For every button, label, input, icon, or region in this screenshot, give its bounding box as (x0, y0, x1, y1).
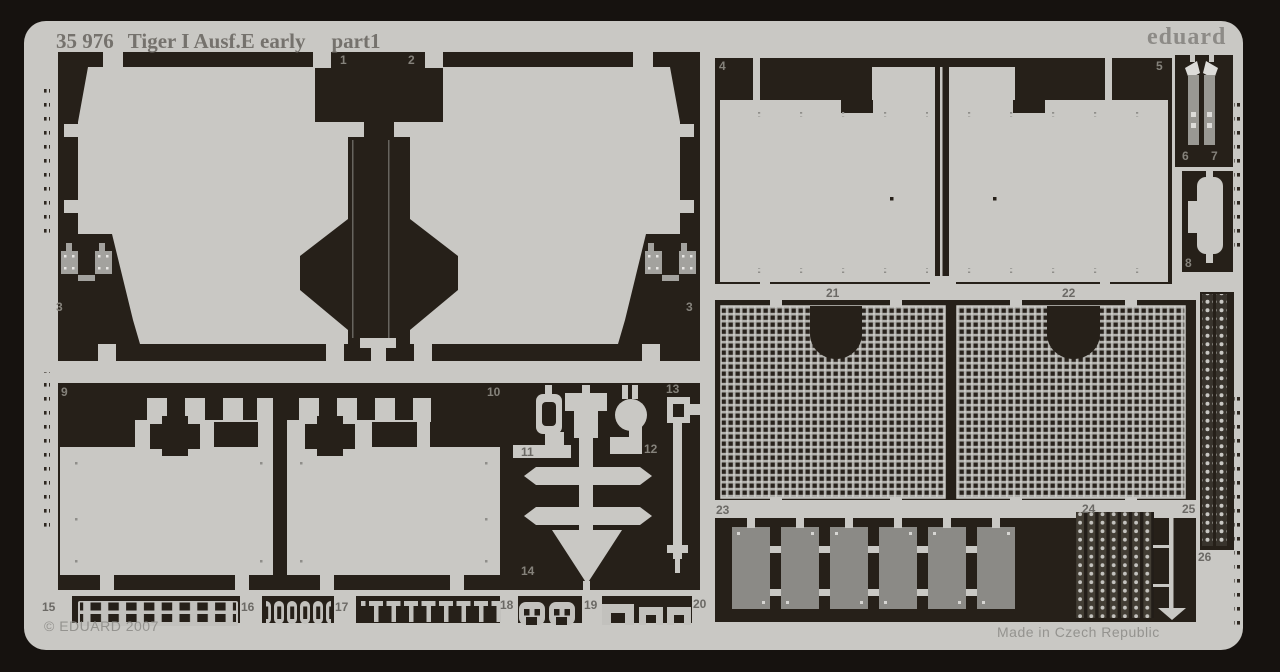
part-22-mesh-grille (957, 306, 1185, 498)
spacer (305, 29, 331, 54)
copyright-text: © EDUARD 2007 (44, 618, 159, 634)
part-label-20: 20 (693, 598, 706, 610)
part-label-8: 8 (1185, 257, 1192, 269)
part-label-5: 5 (1156, 60, 1163, 72)
part-label-3a: 3 (56, 301, 63, 313)
kit-title: Tiger I Ausf.E early (128, 29, 306, 54)
part-16-loops (266, 601, 331, 626)
part-label-18: 18 (500, 599, 513, 611)
part-label-2: 2 (408, 54, 415, 66)
fret-artwork (0, 0, 1280, 672)
part-label-1: 1 (340, 54, 347, 66)
part-label-4: 4 (719, 60, 726, 72)
part-designation: part1 (331, 29, 380, 54)
part-17-pins (361, 601, 501, 627)
part-label-19: 19 (584, 599, 597, 611)
spacer (114, 29, 128, 54)
part-21-mesh-grille (721, 306, 945, 498)
part-label-25: 25 (1182, 503, 1195, 515)
made-in-text: Made in Czech Republic (997, 624, 1160, 640)
part-label-17: 17 (335, 601, 348, 613)
part-label-11: 11 (521, 446, 534, 458)
part-label-10: 10 (487, 386, 500, 398)
part-label-26: 26 (1198, 551, 1211, 563)
header-title: 35 976 Tiger I Ausf.E early part1 (56, 29, 380, 54)
part-label-12: 12 (644, 443, 657, 455)
part-label-6: 6 (1182, 150, 1189, 162)
part-label-7: 7 (1211, 150, 1218, 162)
part-label-9: 9 (61, 386, 68, 398)
brand-logo: eduard (1147, 24, 1226, 51)
part-label-24: 24 (1082, 503, 1095, 515)
part-label-3b: 3 (686, 301, 693, 313)
catalog-number: 35 976 (56, 29, 114, 54)
photoetch-fret-photo: 35 976 Tiger I Ausf.E early part1 eduard… (0, 0, 1280, 672)
part-label-13: 13 (666, 383, 679, 395)
part-label-14: 14 (521, 565, 534, 577)
part-label-16: 16 (241, 601, 254, 613)
part-label-15: 15 (42, 601, 55, 613)
part-24-chain-curtain (1076, 512, 1154, 618)
part-label-23: 23 (716, 504, 729, 516)
part-label-22: 22 (1062, 287, 1075, 299)
part-label-21: 21 (826, 287, 839, 299)
